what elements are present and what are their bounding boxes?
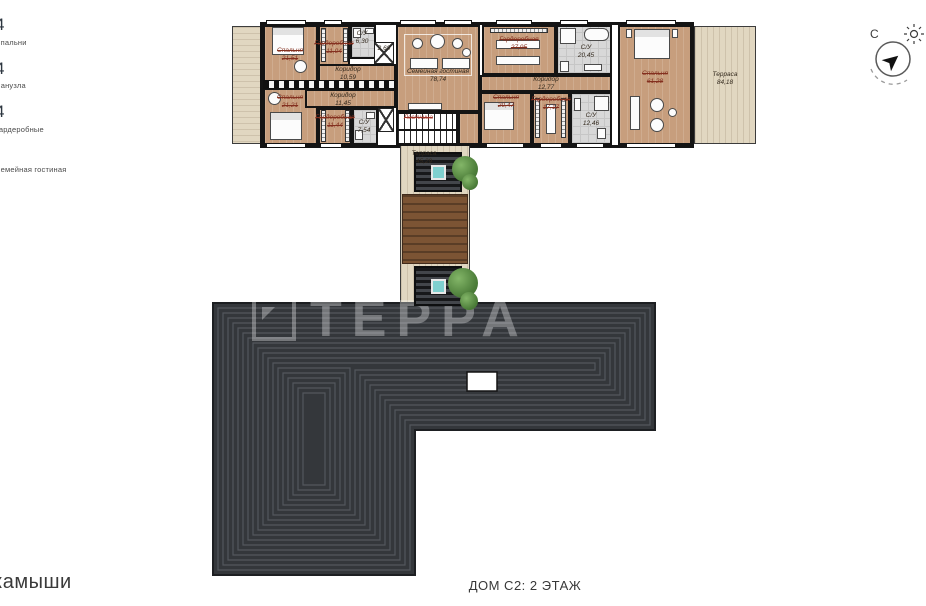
toilet xyxy=(355,130,363,140)
legend-item-family-room: Семейная гостиная xyxy=(0,147,165,174)
room-corridor-right xyxy=(480,75,612,92)
legend: 4 Спальни 4 Санузла 4 Гардеробные Семейн… xyxy=(0,16,165,187)
bathtub xyxy=(584,28,609,41)
sofa xyxy=(630,96,640,130)
shaft-bottom xyxy=(378,108,394,132)
floor-plan-page: 4 Спальни 4 Санузла 4 Гардеробные Семейн… xyxy=(0,0,926,606)
toilet xyxy=(597,128,606,139)
bed xyxy=(484,102,514,130)
room-corridor-bottom xyxy=(305,89,396,108)
roof-skylight xyxy=(467,372,497,391)
shower xyxy=(594,96,609,111)
legend-item-bedrooms: 4 Спальни xyxy=(0,16,165,47)
legend-label: Семейная гостиная xyxy=(0,165,165,174)
label-stairs: Лестница xyxy=(404,115,433,121)
watermark-logo-icon xyxy=(252,297,296,341)
wardrobe-island xyxy=(546,104,556,134)
bed xyxy=(270,112,302,140)
window xyxy=(576,143,604,148)
window xyxy=(444,20,472,25)
armchair xyxy=(412,38,423,49)
north-label: С xyxy=(870,27,879,41)
armchair xyxy=(268,92,281,105)
skylight-glass xyxy=(431,279,446,294)
wardrobe-shelf xyxy=(345,110,350,142)
shower xyxy=(560,28,576,44)
wardrobe-island xyxy=(496,40,540,49)
sink xyxy=(366,112,375,119)
room-closet-shaft xyxy=(374,42,394,64)
wardrobe-shelf xyxy=(535,98,540,138)
window xyxy=(540,143,562,148)
sofa xyxy=(442,58,470,69)
window xyxy=(324,20,342,25)
wardrobe-shelf xyxy=(561,98,566,138)
wardrobe-shelf xyxy=(490,28,548,33)
sofa xyxy=(410,58,438,69)
window xyxy=(486,143,524,148)
sun-icon xyxy=(904,24,924,44)
legend-count: 4 xyxy=(0,103,165,122)
tree xyxy=(462,174,478,190)
project-name: камыши xyxy=(0,571,72,594)
toilet xyxy=(560,61,569,72)
side-table xyxy=(462,48,471,57)
window xyxy=(320,143,342,148)
window xyxy=(560,20,588,25)
armchair xyxy=(294,60,307,73)
legend-item-wardrobes: 4 Гардеробные xyxy=(0,103,165,134)
legend-label: Спальни xyxy=(0,38,165,47)
compass: С ➤ xyxy=(864,22,926,88)
wardrobe-shelf xyxy=(321,28,326,62)
legend-label: Гардеробные xyxy=(0,125,165,134)
tv-console xyxy=(408,103,442,110)
window xyxy=(400,20,436,25)
window xyxy=(496,20,532,25)
window xyxy=(626,20,676,25)
sink xyxy=(574,98,581,111)
watermark: ТЕРРА xyxy=(252,293,529,345)
tree xyxy=(460,292,478,310)
bed xyxy=(634,29,670,59)
legend-count: 4 xyxy=(0,60,165,79)
hall-by-stairs xyxy=(458,112,480,145)
stair-rail xyxy=(398,129,456,131)
terrace-right xyxy=(694,26,756,144)
terrace-left xyxy=(232,26,262,144)
bed xyxy=(272,27,304,55)
window xyxy=(266,143,306,148)
sink xyxy=(365,28,374,34)
sink xyxy=(584,64,602,71)
toilet xyxy=(353,28,361,38)
wardrobe-shelf xyxy=(343,28,348,62)
nightstand xyxy=(672,29,678,38)
legend-label: Санузла xyxy=(0,81,165,90)
builtin-closet-wall xyxy=(263,80,396,89)
coffee-table xyxy=(668,108,677,117)
armchair xyxy=(430,34,445,49)
legend-item-bathrooms: 4 Санузла xyxy=(0,60,165,91)
wardrobe-shelf xyxy=(321,110,326,142)
wardrobe-island xyxy=(496,56,540,65)
armchair xyxy=(650,98,664,112)
window xyxy=(626,143,676,148)
skylight-glass xyxy=(431,165,446,180)
armchair xyxy=(452,38,463,49)
wood-deck xyxy=(402,194,468,264)
window xyxy=(266,20,306,25)
armchair xyxy=(650,118,664,132)
legend-count: 4 xyxy=(0,16,165,35)
nightstand xyxy=(626,29,632,38)
